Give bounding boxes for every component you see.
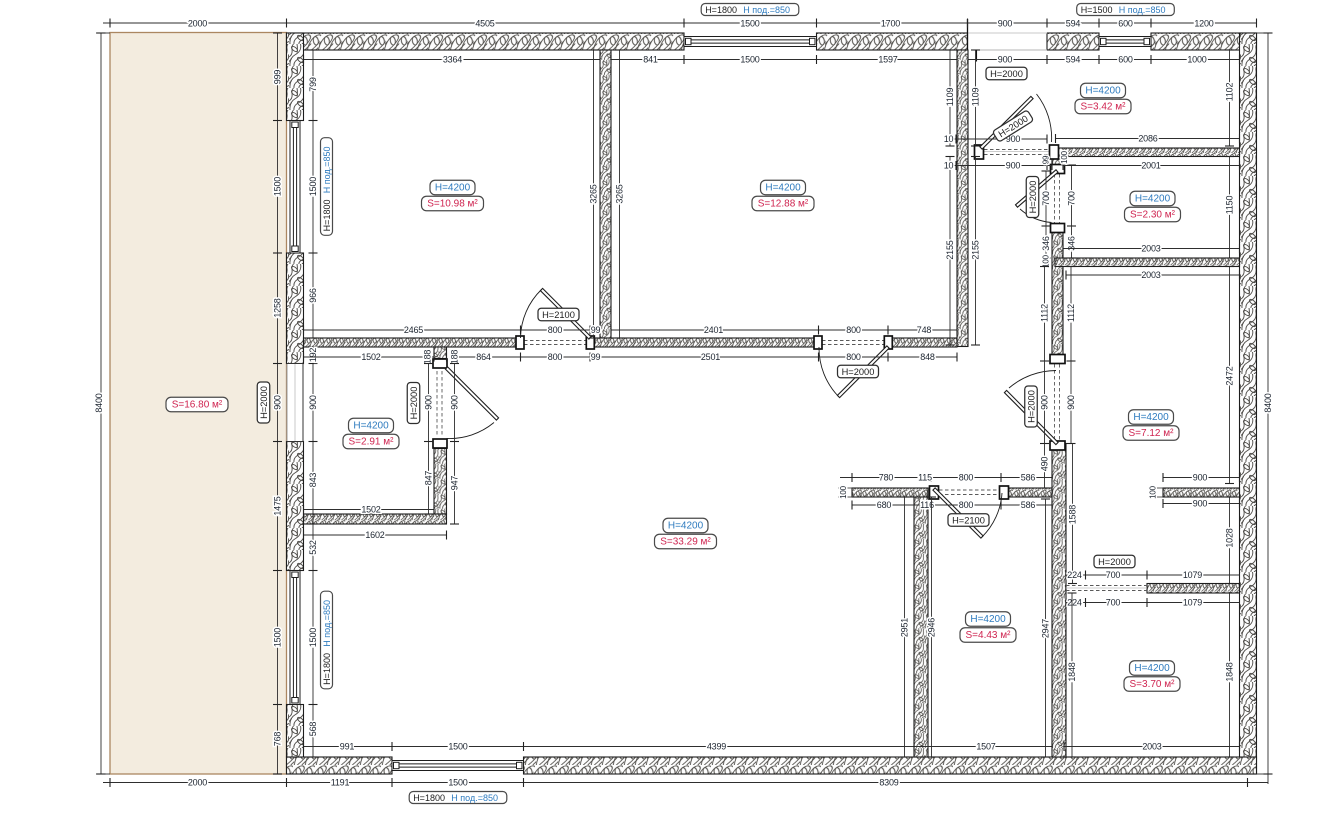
svg-text:568: 568 bbox=[308, 722, 318, 737]
svg-text:99: 99 bbox=[591, 352, 601, 362]
svg-text:99: 99 bbox=[1042, 155, 1051, 164]
svg-text:H=2100: H=2100 bbox=[542, 310, 575, 320]
svg-text:2003: 2003 bbox=[1142, 742, 1161, 752]
svg-text:800: 800 bbox=[846, 352, 861, 362]
svg-text:3364: 3364 bbox=[443, 55, 462, 65]
svg-text:H=4200: H=4200 bbox=[353, 421, 389, 432]
svg-text:2001: 2001 bbox=[1141, 161, 1160, 171]
svg-text:Н под.=850: Н под.=850 bbox=[451, 793, 498, 803]
svg-text:S=33.29 м²: S=33.29 м² bbox=[660, 537, 711, 548]
svg-text:900: 900 bbox=[450, 395, 460, 410]
svg-text:4399: 4399 bbox=[707, 742, 726, 752]
svg-text:H=4200: H=4200 bbox=[1133, 412, 1169, 423]
svg-text:900: 900 bbox=[424, 395, 434, 410]
svg-text:2472: 2472 bbox=[1225, 366, 1235, 385]
svg-text:700: 700 bbox=[1106, 570, 1121, 580]
svg-text:224: 224 bbox=[1067, 570, 1082, 580]
svg-text:S=4.43 м²: S=4.43 м² bbox=[966, 630, 1012, 641]
svg-text:H=1800: H=1800 bbox=[705, 5, 737, 15]
svg-text:H=2000: H=2000 bbox=[409, 387, 419, 420]
svg-text:1500: 1500 bbox=[273, 177, 283, 196]
svg-text:1500: 1500 bbox=[273, 628, 283, 647]
svg-text:1112: 1112 bbox=[1040, 304, 1050, 322]
svg-text:H=4200: H=4200 bbox=[668, 521, 704, 532]
svg-text:900: 900 bbox=[1040, 395, 1050, 410]
svg-text:2003: 2003 bbox=[1141, 244, 1160, 254]
svg-text:1150: 1150 bbox=[1225, 196, 1235, 215]
svg-text:1109: 1109 bbox=[945, 88, 955, 107]
svg-text:8400: 8400 bbox=[94, 393, 104, 412]
svg-text:99: 99 bbox=[591, 325, 601, 335]
svg-text:H=2000: H=2000 bbox=[842, 367, 875, 377]
svg-text:490: 490 bbox=[1040, 457, 1050, 472]
svg-text:780: 780 bbox=[879, 473, 894, 483]
svg-text:1079: 1079 bbox=[1183, 570, 1202, 580]
svg-text:1112: 1112 bbox=[1066, 304, 1076, 322]
svg-text:748: 748 bbox=[917, 325, 932, 335]
svg-text:Н под.=850: Н под.=850 bbox=[322, 146, 332, 193]
svg-text:H=4200: H=4200 bbox=[1085, 86, 1121, 97]
svg-text:841: 841 bbox=[643, 55, 658, 65]
svg-text:900: 900 bbox=[1193, 473, 1208, 483]
svg-text:H=1800: H=1800 bbox=[413, 793, 445, 803]
svg-text:900: 900 bbox=[998, 55, 1013, 65]
svg-text:600: 600 bbox=[1118, 19, 1133, 29]
svg-text:800: 800 bbox=[959, 500, 974, 510]
svg-text:900: 900 bbox=[998, 19, 1013, 29]
svg-text:800: 800 bbox=[548, 325, 563, 335]
svg-text:1500: 1500 bbox=[448, 778, 467, 788]
svg-text:966: 966 bbox=[308, 288, 318, 303]
svg-text:594: 594 bbox=[1066, 19, 1081, 29]
svg-text:Н под.=850: Н под.=850 bbox=[322, 600, 332, 647]
svg-text:2951: 2951 bbox=[900, 618, 910, 637]
svg-text:799: 799 bbox=[308, 77, 318, 92]
svg-text:900: 900 bbox=[1066, 395, 1076, 410]
svg-text:843: 843 bbox=[308, 473, 318, 488]
svg-text:1700: 1700 bbox=[881, 19, 900, 29]
svg-text:1191: 1191 bbox=[331, 778, 350, 788]
svg-text:2000: 2000 bbox=[188, 778, 207, 788]
svg-text:1502: 1502 bbox=[361, 352, 380, 362]
svg-text:532: 532 bbox=[308, 540, 318, 555]
svg-text:800: 800 bbox=[548, 352, 563, 362]
svg-text:594: 594 bbox=[1066, 55, 1081, 65]
svg-text:S=12.88 м²: S=12.88 м² bbox=[758, 199, 809, 210]
svg-text:900: 900 bbox=[308, 395, 318, 410]
svg-text:848: 848 bbox=[920, 352, 935, 362]
svg-text:10: 10 bbox=[944, 161, 954, 171]
svg-text:1000: 1000 bbox=[1187, 55, 1206, 65]
svg-text:H=2000: H=2000 bbox=[259, 386, 269, 419]
svg-text:2465: 2465 bbox=[404, 325, 423, 335]
svg-text:S=16.80 м²: S=16.80 м² bbox=[172, 400, 223, 411]
svg-text:1500: 1500 bbox=[308, 628, 318, 647]
svg-text:1500: 1500 bbox=[308, 177, 318, 196]
svg-text:2401: 2401 bbox=[704, 325, 723, 335]
svg-text:100: 100 bbox=[1060, 150, 1069, 163]
svg-text:S=10.98 м²: S=10.98 м² bbox=[427, 199, 478, 210]
svg-text:H=2100: H=2100 bbox=[952, 516, 985, 526]
svg-text:586: 586 bbox=[1021, 473, 1036, 483]
svg-text:4505: 4505 bbox=[475, 19, 494, 29]
svg-text:116: 116 bbox=[920, 500, 934, 510]
svg-text:H=1500: H=1500 bbox=[1081, 5, 1113, 15]
svg-text:1848: 1848 bbox=[1067, 662, 1077, 681]
svg-text:1500: 1500 bbox=[740, 19, 759, 29]
svg-text:100: 100 bbox=[839, 485, 848, 498]
svg-text:H=4200: H=4200 bbox=[1135, 194, 1171, 205]
svg-text:2000: 2000 bbox=[188, 19, 207, 29]
svg-text:700: 700 bbox=[1041, 191, 1051, 206]
svg-text:H=4200: H=4200 bbox=[1134, 663, 1170, 674]
svg-text:1028: 1028 bbox=[1225, 528, 1235, 547]
svg-text:8400: 8400 bbox=[1263, 393, 1273, 412]
svg-text:1500: 1500 bbox=[448, 742, 467, 752]
svg-text:1109: 1109 bbox=[971, 88, 981, 107]
svg-text:1507: 1507 bbox=[976, 742, 995, 752]
svg-text:8309: 8309 bbox=[879, 778, 898, 788]
svg-text:S=3.70 м²: S=3.70 м² bbox=[1130, 679, 1176, 690]
svg-text:800: 800 bbox=[846, 325, 861, 335]
svg-text:680: 680 bbox=[877, 500, 892, 510]
svg-text:192: 192 bbox=[308, 348, 318, 363]
svg-text:H=2000: H=2000 bbox=[1028, 181, 1038, 214]
svg-text:3265: 3265 bbox=[589, 184, 599, 203]
svg-text:1597: 1597 bbox=[878, 55, 897, 65]
svg-text:2946: 2946 bbox=[927, 618, 937, 637]
svg-text:1588: 1588 bbox=[1068, 505, 1078, 524]
svg-text:188: 188 bbox=[423, 350, 433, 365]
svg-text:346: 346 bbox=[1041, 236, 1051, 251]
svg-text:H=4200: H=4200 bbox=[765, 183, 801, 194]
svg-text:586: 586 bbox=[1021, 500, 1036, 510]
svg-text:100: 100 bbox=[1149, 485, 1158, 498]
svg-text:S=3.42 м²: S=3.42 м² bbox=[1081, 102, 1127, 113]
svg-text:1475: 1475 bbox=[273, 496, 283, 515]
svg-text:1848: 1848 bbox=[1225, 662, 1235, 681]
svg-text:3265: 3265 bbox=[615, 184, 625, 203]
svg-text:700: 700 bbox=[1106, 598, 1121, 608]
svg-text:188: 188 bbox=[450, 350, 460, 365]
svg-text:2155: 2155 bbox=[971, 240, 981, 259]
svg-text:847: 847 bbox=[424, 471, 434, 486]
svg-text:Н под.=850: Н под.=850 bbox=[743, 5, 790, 15]
svg-text:H=1800: H=1800 bbox=[322, 200, 332, 232]
svg-text:800: 800 bbox=[959, 473, 974, 483]
svg-text:10: 10 bbox=[944, 134, 954, 144]
svg-text:S=7.12 м²: S=7.12 м² bbox=[1129, 428, 1175, 439]
svg-text:2003: 2003 bbox=[1141, 270, 1160, 280]
svg-text:H=1800: H=1800 bbox=[322, 653, 332, 685]
svg-text:115: 115 bbox=[918, 473, 932, 483]
svg-text:1258: 1258 bbox=[273, 298, 283, 317]
svg-text:2086: 2086 bbox=[1138, 134, 1157, 144]
svg-text:999: 999 bbox=[273, 70, 283, 85]
svg-text:S=2.91 м²: S=2.91 м² bbox=[349, 437, 395, 448]
svg-text:1102: 1102 bbox=[1225, 83, 1235, 102]
svg-text:2155: 2155 bbox=[945, 240, 955, 259]
svg-text:H=4200: H=4200 bbox=[435, 183, 471, 194]
svg-text:S=2.30 м²: S=2.30 м² bbox=[1130, 210, 1176, 221]
svg-text:700: 700 bbox=[1067, 191, 1077, 206]
svg-text:1079: 1079 bbox=[1183, 598, 1202, 608]
svg-text:900: 900 bbox=[273, 395, 283, 410]
svg-text:2947: 2947 bbox=[1041, 619, 1051, 638]
svg-text:2501: 2501 bbox=[701, 352, 720, 362]
svg-text:1500: 1500 bbox=[740, 55, 759, 65]
svg-text:H=2000: H=2000 bbox=[990, 69, 1023, 79]
svg-text:768: 768 bbox=[273, 732, 283, 747]
svg-text:Н под.=850: Н под.=850 bbox=[1119, 5, 1166, 15]
svg-text:H=4200: H=4200 bbox=[970, 614, 1006, 625]
svg-text:900: 900 bbox=[1006, 161, 1021, 171]
svg-text:H=2000: H=2000 bbox=[1098, 557, 1131, 567]
svg-text:1502: 1502 bbox=[361, 505, 380, 515]
svg-text:224: 224 bbox=[1067, 598, 1082, 608]
svg-text:H=2000: H=2000 bbox=[1027, 390, 1037, 423]
svg-text:100: 100 bbox=[1042, 254, 1051, 267]
svg-text:1200: 1200 bbox=[1194, 19, 1213, 29]
svg-text:991: 991 bbox=[340, 742, 355, 752]
svg-text:900: 900 bbox=[1193, 499, 1208, 509]
svg-text:1602: 1602 bbox=[365, 530, 384, 540]
svg-text:947: 947 bbox=[450, 476, 460, 491]
svg-text:864: 864 bbox=[476, 352, 491, 362]
svg-text:600: 600 bbox=[1118, 55, 1133, 65]
